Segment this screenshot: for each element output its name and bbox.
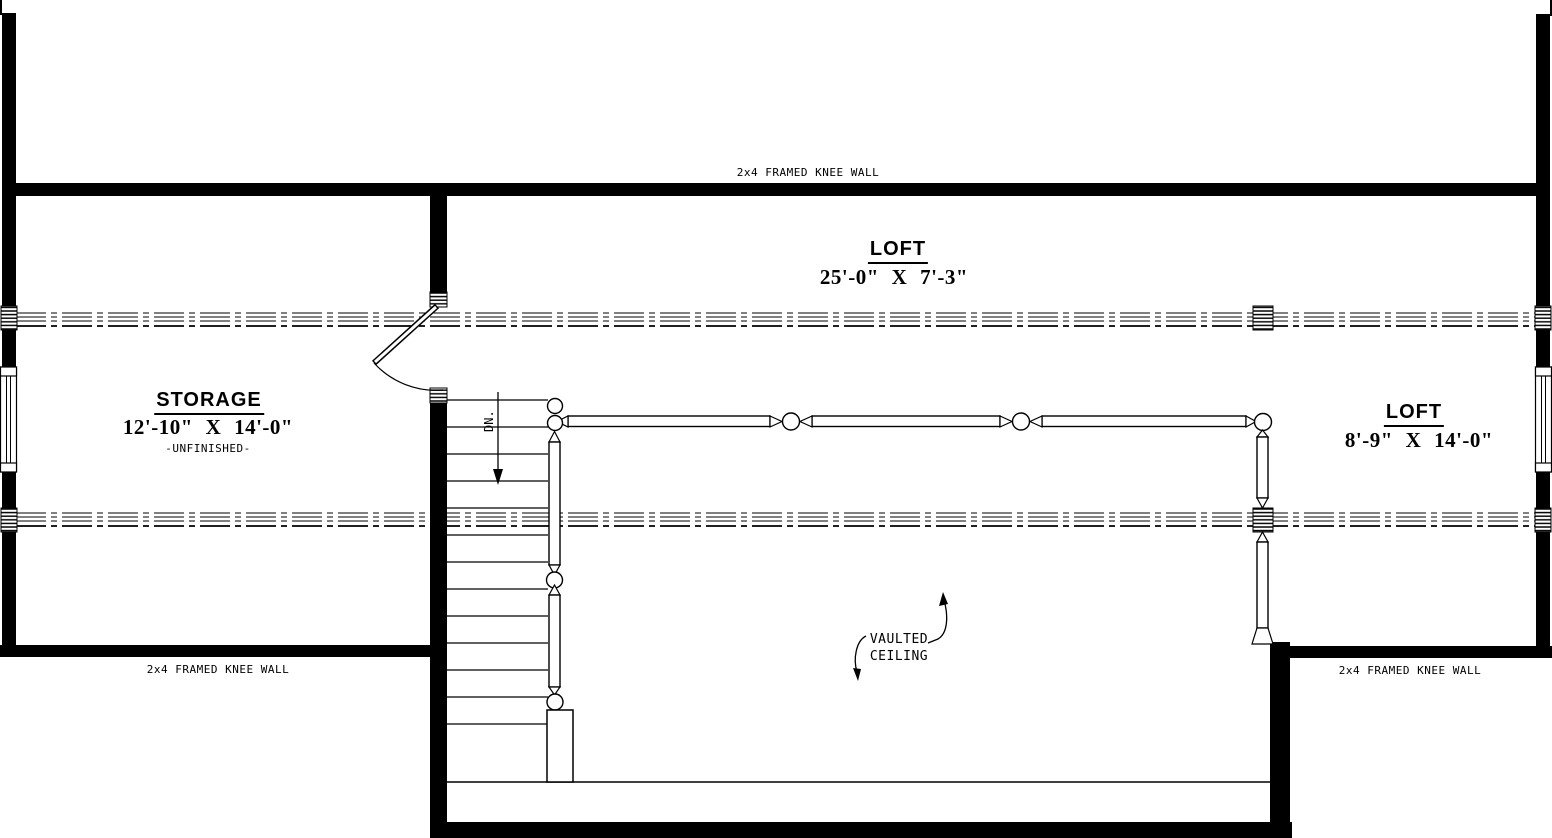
vaulted-ceiling-label: VAULTED CEILING — [870, 631, 928, 665]
rail-bracket — [1257, 498, 1268, 508]
rail-post — [547, 694, 563, 710]
rail-bracket — [1030, 416, 1042, 427]
loft-main-dimensions: 25'-0" X 7'-3" — [820, 265, 968, 290]
rail-post — [1255, 414, 1272, 431]
rail-bracket — [1257, 430, 1268, 437]
storage-note: -UNFINISHED- — [165, 442, 250, 455]
loft-main-name: LOFT — [868, 238, 928, 264]
loft-right-dimensions: 8'-9" X 14'-0" — [1345, 428, 1493, 453]
roof-beam-dashed-line-upper — [16, 313, 1536, 326]
rail-beam-blocking — [1253, 508, 1273, 532]
roof-beam-dashed-line-lower — [16, 513, 1536, 526]
top-knee-wall — [2, 183, 1550, 196]
right-window — [1536, 367, 1552, 472]
stair-newel-base — [547, 710, 573, 782]
down-label: DN. — [482, 410, 496, 432]
stair-wall-upper — [430, 190, 447, 293]
rail-bracket — [1257, 532, 1268, 542]
stair-wall-lower — [430, 402, 447, 838]
right-interior-wall — [1270, 642, 1290, 838]
rail-bracket — [770, 416, 782, 427]
right-exterior-wall-lower — [1536, 472, 1550, 658]
knee-wall-label-bottom-left: 2x4 FRAMED KNEE WALL — [147, 663, 289, 676]
loft-right-name: LOFT — [1384, 401, 1444, 427]
rail-post — [1013, 413, 1030, 430]
bottom-right-knee-wall — [1270, 646, 1552, 658]
left-exterior-wall-lower — [2, 472, 16, 657]
leader-arrow-down — [853, 636, 866, 681]
bottom-left-knee-wall — [0, 645, 447, 657]
left-wall-stub — [0, 0, 2, 15]
leader-arrow-up — [928, 592, 948, 643]
bottom-wall — [430, 822, 1292, 838]
rail-post — [548, 399, 563, 414]
vaulted-ceiling-line1: VAULTED — [870, 631, 928, 648]
left-window — [1, 367, 17, 472]
rail-post — [548, 416, 563, 431]
down-arrow — [493, 392, 503, 485]
rail-bracket — [800, 416, 812, 427]
railing — [547, 399, 1274, 783]
door-swing-arc — [374, 363, 443, 390]
door — [374, 306, 443, 390]
storage-dimensions: 12'-10" X 14'-0" — [123, 415, 293, 440]
rail-foot-bracket — [1252, 628, 1273, 644]
rail-bracket — [549, 432, 560, 443]
knee-wall-label-top: 2x4 FRAMED KNEE WALL — [737, 166, 879, 179]
rail-bracket — [1000, 416, 1012, 427]
knee-wall-label-bottom-right: 2x4 FRAMED KNEE WALL — [1339, 664, 1481, 677]
rail-post — [783, 413, 800, 430]
vaulted-ceiling-line2: CEILING — [870, 648, 928, 665]
storage-name: STORAGE — [154, 389, 264, 415]
floor-plan: DN. — [0, 0, 1552, 838]
